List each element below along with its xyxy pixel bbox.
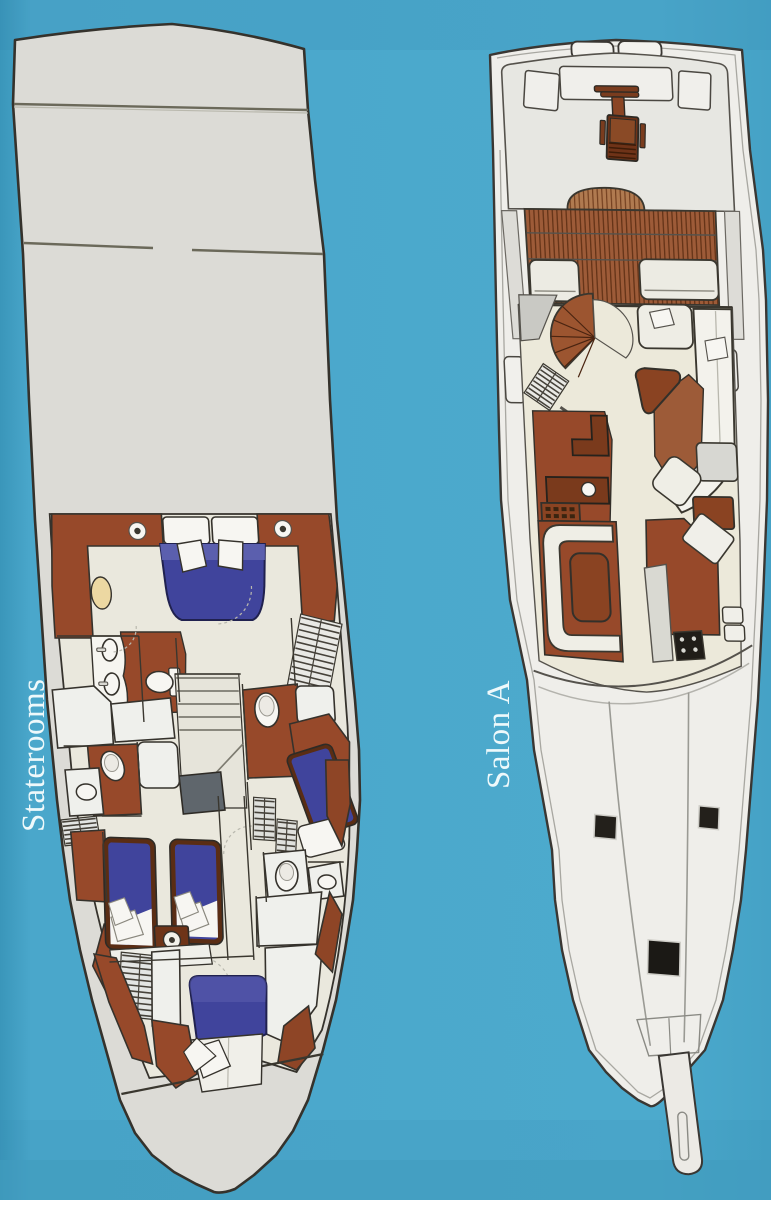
svg-text:Salon A: Salon A [481, 680, 517, 789]
svg-text:Staterooms: Staterooms [16, 679, 52, 832]
